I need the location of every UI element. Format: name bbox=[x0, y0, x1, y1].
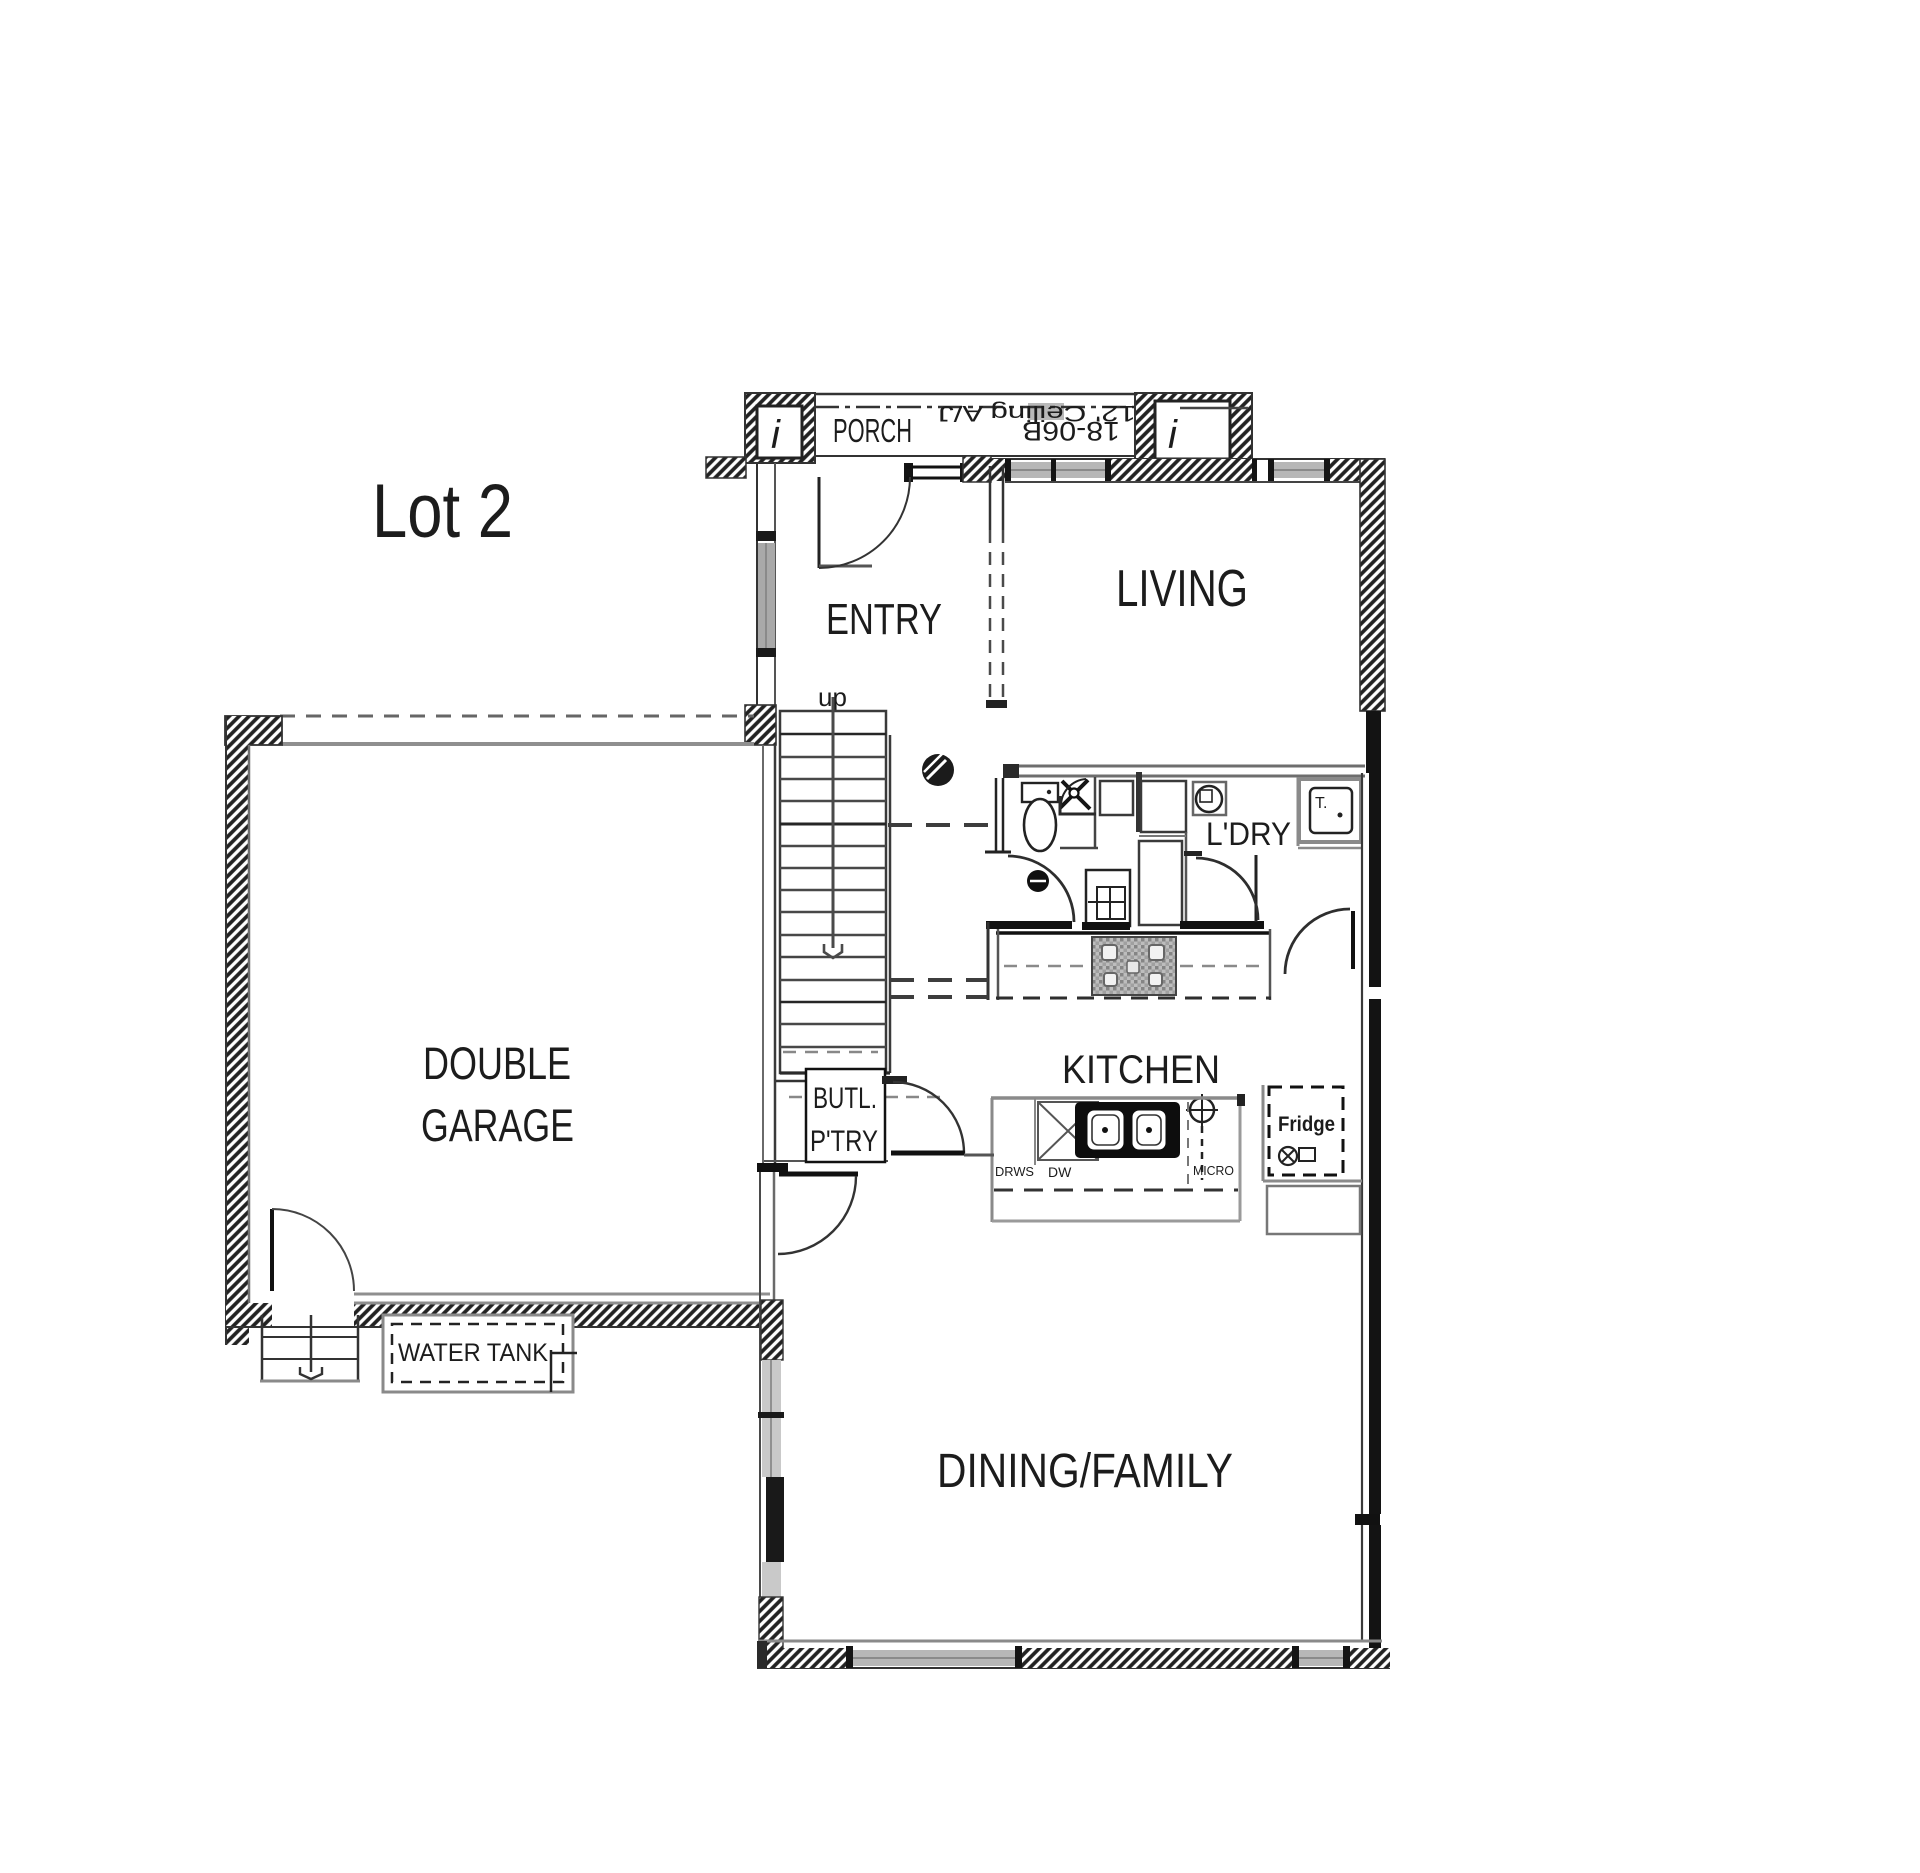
svg-text:BUTL.: BUTL. bbox=[813, 1082, 877, 1115]
svg-text:Lot 2: Lot 2 bbox=[372, 469, 513, 554]
svg-text:KITCHEN: KITCHEN bbox=[1062, 1048, 1220, 1092]
svg-text:LIVING: LIVING bbox=[1116, 560, 1248, 618]
svg-text:WATER TANK: WATER TANK bbox=[398, 1339, 548, 1367]
svg-text:18-06B: 18-06B bbox=[1022, 416, 1120, 446]
svg-text:DRWS: DRWS bbox=[995, 1164, 1034, 1179]
svg-text:i: i bbox=[1168, 413, 1178, 457]
svg-text:ENTRY: ENTRY bbox=[826, 595, 942, 644]
svg-text:PORCH: PORCH bbox=[833, 412, 912, 449]
svg-text:MICRO: MICRO bbox=[1193, 1164, 1234, 1178]
svg-text:GARAGE: GARAGE bbox=[421, 1100, 574, 1151]
svg-text:T.: T. bbox=[1315, 795, 1327, 812]
svg-text:L'DRY: L'DRY bbox=[1206, 816, 1291, 852]
svg-text:DINING/FAMILY: DINING/FAMILY bbox=[937, 1445, 1233, 1498]
svg-text:P'TRY: P'TRY bbox=[810, 1125, 878, 1158]
svg-text:Fridge: Fridge bbox=[1278, 1113, 1335, 1136]
svg-text:DOUBLE: DOUBLE bbox=[423, 1038, 571, 1089]
svg-text:DW: DW bbox=[1048, 1164, 1072, 1180]
svg-text:i: i bbox=[771, 413, 781, 457]
